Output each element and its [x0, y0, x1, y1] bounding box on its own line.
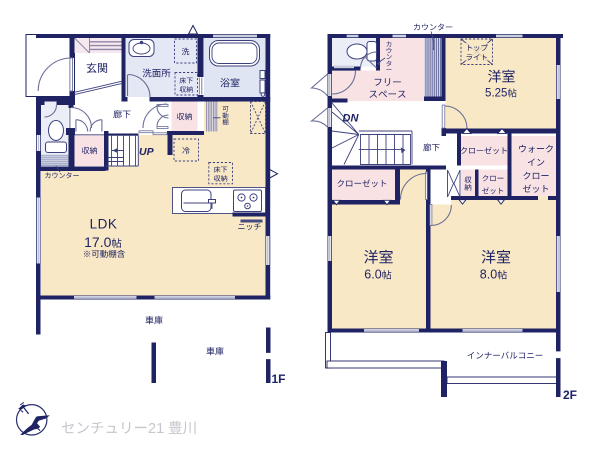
svg-text:インナーバルコニー: インナーバルコニー — [467, 351, 544, 361]
svg-text:廊下: 廊下 — [113, 110, 131, 120]
svg-text:ウォーク: ウォーク — [518, 144, 554, 154]
svg-text:2F: 2F — [563, 388, 577, 402]
svg-text:クローゼット: クローゼット — [460, 147, 508, 156]
svg-text:※可動棚含: ※可動棚含 — [83, 249, 126, 259]
svg-text:8.0帖: 8.0帖 — [480, 268, 507, 282]
svg-text:廊下: 廊下 — [423, 143, 441, 153]
svg-text:6.0帖: 6.0帖 — [364, 268, 391, 282]
svg-text:カウンター: カウンター — [413, 23, 453, 32]
svg-text:車庫: 車庫 — [206, 347, 224, 357]
svg-text:収納: 収納 — [177, 113, 193, 122]
svg-text:床下: 床下 — [179, 77, 193, 85]
svg-text:ゼット: ゼット — [522, 184, 549, 194]
svg-text:ニッチ: ニッチ — [238, 223, 262, 232]
svg-text:ゼット: ゼット — [482, 187, 505, 196]
svg-text:収納: 収納 — [82, 147, 98, 156]
svg-text:洗: 洗 — [182, 48, 190, 57]
svg-text:トップ: トップ — [466, 44, 489, 53]
svg-text:スペース: スペース — [368, 90, 406, 101]
svg-text:DN: DN — [343, 113, 360, 125]
svg-text:洋室: 洋室 — [481, 250, 511, 267]
svg-text:1F: 1F — [272, 372, 286, 386]
svg-text:UP: UP — [139, 146, 155, 158]
svg-text:冷: 冷 — [182, 147, 190, 156]
svg-text:玄関: 玄関 — [86, 62, 108, 75]
svg-text:収納: 収納 — [179, 86, 193, 94]
svg-text:LDK: LDK — [90, 217, 118, 232]
svg-text:収納: 収納 — [214, 175, 228, 183]
svg-text:カウンター: カウンター — [45, 172, 80, 180]
svg-text:床下: 床下 — [214, 166, 228, 174]
svg-text:5.25帖: 5.25帖 — [485, 88, 517, 100]
svg-text:浴室: 浴室 — [220, 78, 240, 90]
svg-text:収納: 収納 — [463, 175, 472, 191]
svg-text:クロー: クロー — [522, 171, 549, 181]
svg-text:クローゼット: クローゼット — [336, 179, 387, 189]
svg-text:洗面所: 洗面所 — [142, 69, 171, 80]
svg-text:洋室: 洋室 — [363, 250, 393, 267]
svg-text:車庫: 車庫 — [145, 316, 163, 326]
svg-text:クロー: クロー — [482, 174, 505, 183]
svg-text:洋室: 洋室 — [488, 69, 516, 85]
svg-text:センチュリー21 豊川: センチュリー21 豊川 — [61, 420, 197, 437]
svg-text:ライト: ライト — [466, 53, 489, 62]
svg-text:フリー: フリー — [373, 78, 402, 89]
svg-text:イン: イン — [527, 158, 545, 168]
